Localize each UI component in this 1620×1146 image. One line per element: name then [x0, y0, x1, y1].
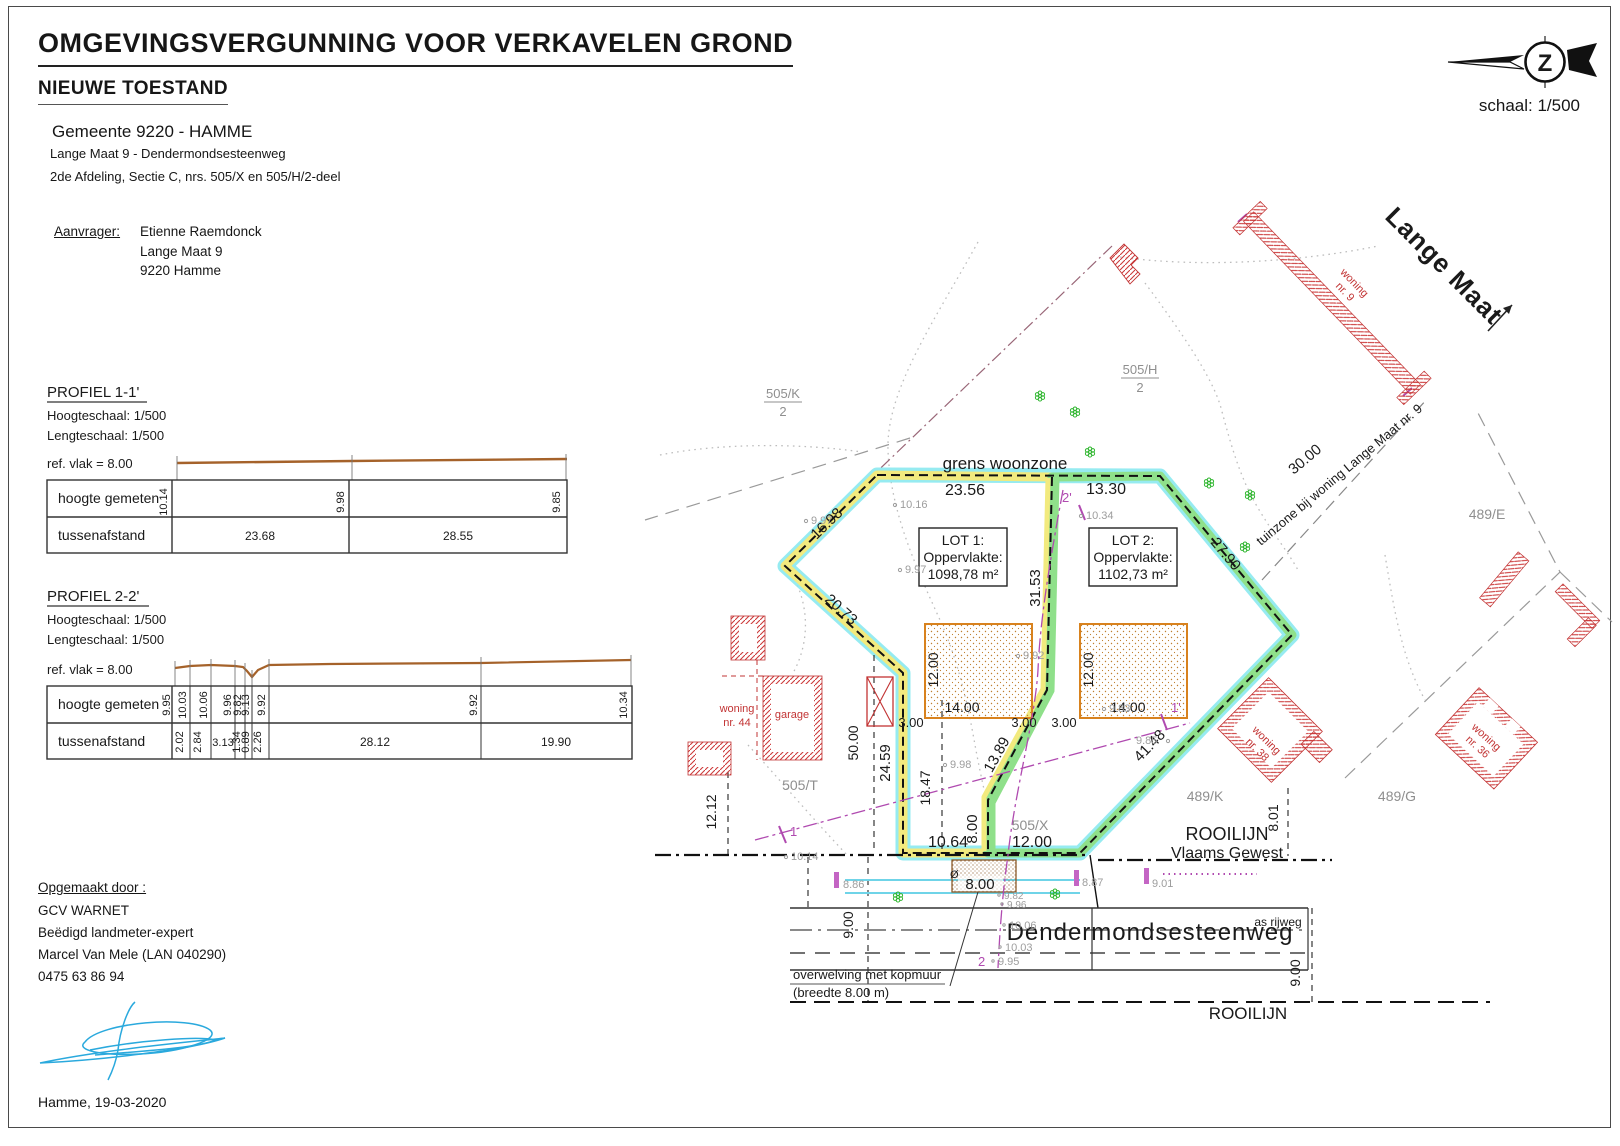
svg-text:9.83: 9.83 [1109, 703, 1130, 715]
rooilijn-bottom: ROOILIJN [1209, 1004, 1287, 1023]
dim-z1w: 14.00 [944, 699, 979, 715]
svg-text:505/H: 505/H [1123, 362, 1158, 377]
profile2-distance-5: 2.26 [252, 731, 264, 752]
svg-text:9.98: 9.98 [950, 759, 971, 771]
profile1-length-scale: Lengteschaal: 1/500 [47, 428, 164, 443]
garage-label: garage [775, 709, 809, 721]
profile2-height-7: 9.92 [468, 694, 480, 715]
profile2-ticks [175, 655, 631, 686]
page-title: OMGEVINGSVERGUNNING VOOR VERKAVELEN GRON… [38, 28, 793, 67]
building-fragment-far-right [1538, 584, 1601, 647]
profile1-row1-label: hoogte gemeten [58, 490, 159, 506]
lot2-info-box: LOT 2: Oppervlakte: 1102,73 m² [1089, 528, 1177, 586]
profile2-height-6: 9.92 [256, 694, 268, 715]
svg-text:10.14: 10.14 [791, 851, 819, 863]
profile2-height-0: 9.95 [161, 694, 173, 715]
structure-crossed-box-x [867, 677, 893, 726]
svg-text:10.16: 10.16 [900, 499, 928, 511]
profile1-ref-plane: ref. vlak = 8.00 [47, 456, 133, 471]
address-line-2: 2de Afdeling, Sectie C, nrs. 505/X en 50… [50, 169, 341, 184]
culvert-leader [950, 892, 978, 986]
profile1-height-scale: Hoogteschaal: 1/500 [47, 408, 166, 423]
contour-lines [660, 242, 1425, 856]
compass-needle-outline [1448, 62, 1524, 69]
author-company: GCV WARNET [38, 903, 129, 918]
author-label: Opgemaakt door : [38, 880, 146, 895]
svg-text:2: 2 [1136, 380, 1143, 395]
parcel-489k: 489/K [1187, 788, 1224, 804]
author-role: Beëdigd landmeter-expert [38, 925, 193, 940]
compass-ribbon-icon [1567, 43, 1597, 77]
street-main-label: Dendermondsesteenweg [1007, 919, 1294, 946]
parcel-489e: 489/E [1469, 506, 1506, 522]
tree-icon [1240, 542, 1249, 552]
svg-text:9.96: 9.96 [1007, 900, 1027, 911]
lot2-name: LOT 2: [1112, 532, 1155, 548]
address-line-1: Lange Maat 9 - Dendermondsesteenweg [50, 146, 286, 161]
rooilijn-right-2: Vlaams Gewest [1171, 845, 1284, 862]
compass-needle-icon [1448, 55, 1524, 62]
profile2-terrain-line [175, 660, 631, 677]
profile1-height-1: 9.98 [335, 491, 347, 512]
dim-ext50: 50.00 [845, 725, 861, 760]
dim-road9r: 9.00 [1287, 959, 1303, 986]
dim-div1: 31.53 [1027, 569, 1044, 607]
signature [30, 992, 270, 1092]
dim-culvert: 8.00 [965, 876, 994, 893]
profile1-terrain-line [177, 459, 567, 463]
profile1-distance-0: 23.68 [245, 529, 275, 543]
profile2-distance-1: 2.84 [192, 731, 204, 752]
parcel-489g: 489/G [1378, 788, 1416, 804]
profile2-height-2: 10.06 [198, 691, 210, 719]
profile2-ref-plane: ref. vlak = 8.00 [47, 662, 133, 677]
dim-top1: 23.56 [945, 482, 985, 499]
svg-text:505/K: 505/K [766, 386, 800, 401]
profile1-ticks [177, 454, 566, 480]
dim-z1h: 12.00 [925, 652, 941, 687]
applicant-city: 9220 Hamme [140, 263, 221, 278]
author-name: Marcel Van Mele (LAN 040290) [38, 947, 226, 962]
parcel-505t: 505/T [782, 777, 818, 793]
road-axis-label: as rijweg [1254, 915, 1301, 929]
marker-2: 2 [978, 954, 985, 969]
lot2-area: 1102,73 m² [1098, 566, 1168, 582]
dim-south1: 10.64 [928, 834, 968, 851]
dim-road9l: 9.00 [840, 911, 856, 938]
profile1-height-0: 10.14 [158, 488, 170, 516]
profile1-distance-1: 28.55 [443, 529, 473, 543]
woning44-label-1: woning [719, 703, 755, 715]
profile1-title: PROFIEL 1-1' [47, 384, 139, 401]
profile2-row1-label: hoogte gemeten [58, 696, 159, 712]
svg-text:10.03: 10.03 [1005, 942, 1033, 954]
lot2-area-label: Oppervlakte: [1093, 549, 1172, 565]
plan-sheet: OMGEVINGSVERGUNNING VOOR VERKAVELEN GRON… [0, 0, 1620, 1146]
profile2-length-scale: Lengteschaal: 1/500 [47, 632, 164, 647]
tree-icon [1085, 447, 1094, 457]
tree-icon [1070, 407, 1079, 417]
culvert-note-2: (breedte 8.00 m) [793, 985, 889, 1000]
profile2-distance-7: 19.90 [541, 735, 571, 749]
compass-letter: Z [1538, 50, 1553, 77]
page-subtitle: NIEUWE TOESTAND [38, 78, 228, 105]
profile2-height-5: 9.13 [240, 694, 252, 715]
profile2-row2-label: tussenafstand [58, 733, 145, 749]
profile2-title: PROFIEL 2-2' [47, 588, 139, 605]
svg-text:2: 2 [779, 404, 786, 419]
dim-west: 24.59 [877, 744, 894, 782]
lot1-area-label: Oppervlakte: [923, 549, 1002, 565]
profile-2-section: PROFIEL 2-2' Hoogteschaal: 1/500 Lengtes… [30, 582, 675, 772]
svg-text:8.86: 8.86 [843, 879, 864, 891]
street-side-label: Lange Maat [1380, 201, 1509, 330]
building-fragment-right [1480, 552, 1529, 607]
parcel-505k: 505/K 2 [764, 386, 802, 419]
rooilijn-right-1: ROOILIJN [1185, 824, 1268, 844]
dim-ext1212: 12.12 [703, 794, 719, 829]
dim-top2: 13.30 [1086, 481, 1126, 498]
author-phone: 0475 63 86 94 [38, 969, 124, 984]
applicant-street: Lange Maat 9 [140, 244, 223, 259]
dim-ext1847: 18.47 [917, 770, 933, 805]
dim-z2h: 12.00 [1080, 652, 1096, 687]
svg-text:9.01: 9.01 [1152, 878, 1173, 890]
north-arrow: Z [1420, 28, 1620, 106]
svg-text:9.85: 9.85 [1136, 735, 1157, 747]
profile2-distance-0: 2.02 [174, 731, 186, 752]
dim-setb1: 3.00 [898, 715, 923, 730]
svg-text:9.97: 9.97 [811, 515, 832, 527]
dim-setb2: 3.00 [1011, 715, 1036, 730]
tuinzone-note: tuinzone bij woning Lange Maat nr. 9 [1253, 401, 1425, 549]
marker-2e: 2' [1062, 490, 1072, 505]
marker-1: 1 [790, 824, 797, 839]
culvert-note-1: overwelving met kopmuur [793, 967, 942, 982]
dim-setb3: 3.00 [1051, 715, 1076, 730]
woning44-label-2: nr. 44 [723, 717, 751, 729]
diameter-symbol: Ø [950, 869, 959, 881]
lot1-info-box: LOT 1: Oppervlakte: 1098,78 m² [919, 528, 1007, 586]
applicant-name: Etienne Raemdonck [140, 224, 262, 239]
dim-south2: 12.00 [1012, 834, 1052, 851]
zone-label: grens woonzone [943, 454, 1068, 473]
tree-icon [1035, 391, 1044, 401]
profile2-height-scale: Hoogteschaal: 1/500 [47, 612, 166, 627]
site-plan: LOT 1: Oppervlakte: 1098,78 m² LOT 2: Op… [630, 185, 1620, 1035]
applicant-label: Aanvrager: [54, 224, 120, 239]
profile2-height-8: 10.34 [618, 691, 630, 719]
svg-text:8.87: 8.87 [1082, 877, 1103, 889]
building-woning-44 [688, 616, 822, 775]
municipality: Gemeente 9220 - HAMME [52, 122, 252, 142]
profile2-distance-6: 28.12 [360, 735, 390, 749]
profile2-height-1: 10.03 [177, 691, 189, 719]
parcel-505x: 505/X [1012, 817, 1049, 833]
tree-icon [1245, 490, 1254, 500]
svg-text:9.92: 9.92 [1023, 650, 1044, 662]
profile1-height-2: 9.85 [551, 491, 563, 512]
profile2-distance-4: 0.89 [240, 731, 252, 752]
svg-text:9.97: 9.97 [905, 564, 926, 576]
svg-text:10.06: 10.06 [1009, 920, 1037, 932]
profile-1-section: PROFIEL 1-1' Hoogteschaal: 1/500 Lengtes… [30, 378, 675, 564]
dim-tuin30: 30.00 [1285, 441, 1325, 478]
marker-1e: 1' [1171, 700, 1181, 715]
svg-text:10.34: 10.34 [1086, 510, 1114, 522]
profile1-row2-label: tussenafstand [58, 527, 145, 543]
parcel-505h: 505/H 2 [1121, 362, 1159, 395]
lot1-area: 1098,78 m² [928, 566, 999, 582]
scale-label: schaal: 1/500 [1380, 96, 1580, 116]
svg-text:9.95: 9.95 [998, 956, 1019, 968]
building-small-shed [1110, 244, 1140, 284]
tree-icon [1204, 478, 1213, 488]
date-line: Hamme, 19-03-2020 [38, 1094, 166, 1110]
lot1-name: LOT 1: [942, 532, 985, 548]
